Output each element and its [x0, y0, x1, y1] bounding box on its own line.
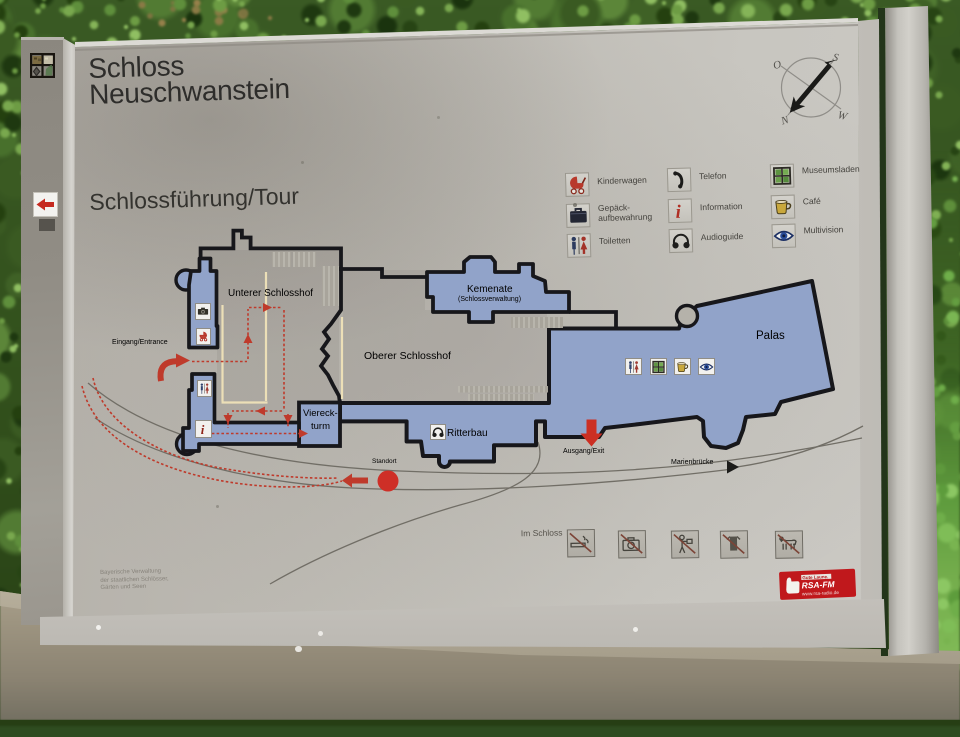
- svg-text:www.rsa-radio.de: www.rsa-radio.de: [802, 590, 840, 598]
- svg-text:RSA-FM: RSA-FM: [801, 579, 835, 590]
